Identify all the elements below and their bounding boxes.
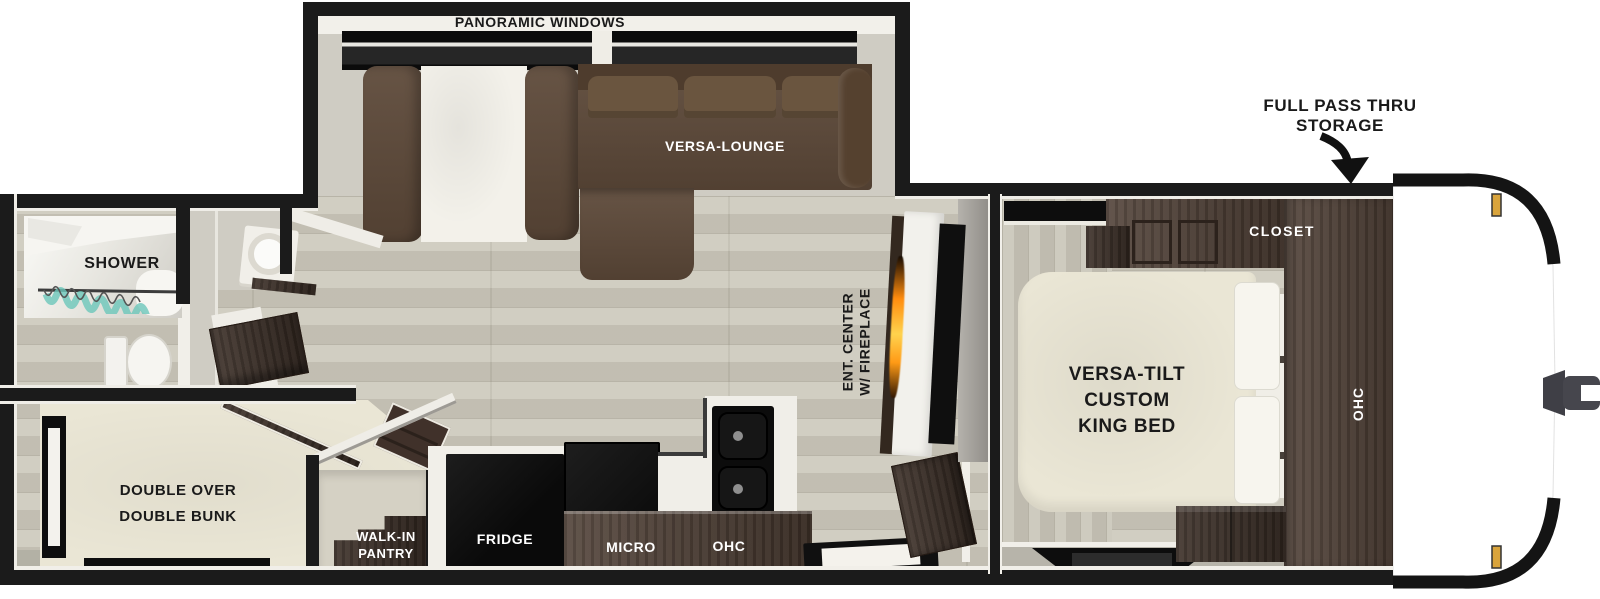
sofa-chaise: [580, 188, 694, 280]
kitchen-counter: [658, 453, 708, 515]
top-left-wall: [0, 194, 318, 208]
counter-edge: [703, 398, 707, 458]
closet-label: CLOSET: [1222, 223, 1342, 241]
sink-basin: [718, 466, 768, 510]
micro-label: MICRO: [581, 539, 681, 557]
king-bed-label: VERSA-TILT CUSTOM KING BED: [1027, 362, 1227, 440]
shower-curtain: [36, 282, 188, 314]
kitchen-ohc-label: OHC: [689, 538, 769, 556]
sofa-bed-right-arm: [525, 66, 579, 240]
sofa-bed-mattress: [421, 66, 527, 242]
pantry-left-wall: [306, 455, 319, 583]
shower-label: SHOWER: [62, 254, 182, 274]
pass-thru-storage-label: FULL PASS THRU STORAGE: [1248, 96, 1432, 136]
bed-pillow: [1234, 282, 1280, 390]
hitch-coupler: [1543, 370, 1565, 416]
panoramic-windows-label: PANORAMIC WINDOWS: [398, 14, 682, 32]
versa-lounge-label: VERSA-LOUNGE: [620, 138, 830, 156]
sofa-back-cushion: [684, 76, 776, 118]
bedside-cabinet: [1086, 226, 1130, 268]
pantry-label: WALK-IN PANTRY: [326, 528, 446, 562]
clearance-light: [1492, 194, 1501, 216]
bunk-label: DOUBLE OVER DOUBLE BUNK: [58, 478, 298, 530]
counter-edge: [658, 452, 706, 456]
sink-drain: [733, 431, 743, 441]
lounge-window-left: [342, 31, 592, 70]
closet-door-frame: [1132, 220, 1172, 264]
bedroom-wall: [988, 194, 1002, 574]
fridge-surround: [428, 446, 568, 454]
hall-wall-stub: [280, 204, 292, 274]
clearance-light: [1492, 546, 1501, 568]
front-cap-body: [1393, 186, 1555, 576]
front-cap: [1393, 166, 1600, 596]
bathroom-bottom-wall: [0, 388, 356, 401]
floorplan: PANORAMIC WINDOWS VERSA-LOUNGE FULL PASS…: [0, 0, 1600, 599]
sink-basin: [718, 412, 768, 460]
bedroom-bottom-window-glass: [1072, 553, 1172, 567]
slideout-left-wall: [303, 2, 318, 196]
toilet-bowl: [126, 334, 172, 390]
toilet-tank: [104, 336, 128, 388]
bed-foot-cabinet-seam: [1230, 506, 1232, 562]
fridge-label: FRIDGE: [455, 531, 555, 549]
bottom-wall: [0, 570, 1447, 585]
ent-center-label: ENT. CENTER W/ FIREPLACE: [840, 250, 874, 435]
sink-drain: [733, 484, 743, 494]
sofa-bed-left-arm: [363, 66, 423, 242]
sofa-right-arm: [838, 68, 872, 188]
bathroom-wall-face: [188, 208, 218, 404]
bedroom-ohc-label: OHC: [1350, 366, 1374, 442]
closet-door-frame: [1178, 220, 1218, 264]
stove: [564, 442, 660, 514]
hitch-arm-slot: [1581, 385, 1600, 401]
fridge: [446, 454, 564, 575]
sofa-back-cushion: [588, 76, 678, 118]
bedroom-ohc-cabinet: [1284, 196, 1408, 570]
bed-pillow: [1234, 396, 1280, 504]
storage-arrow-icon: [1295, 130, 1375, 190]
slideout-right-wall: [895, 2, 910, 186]
